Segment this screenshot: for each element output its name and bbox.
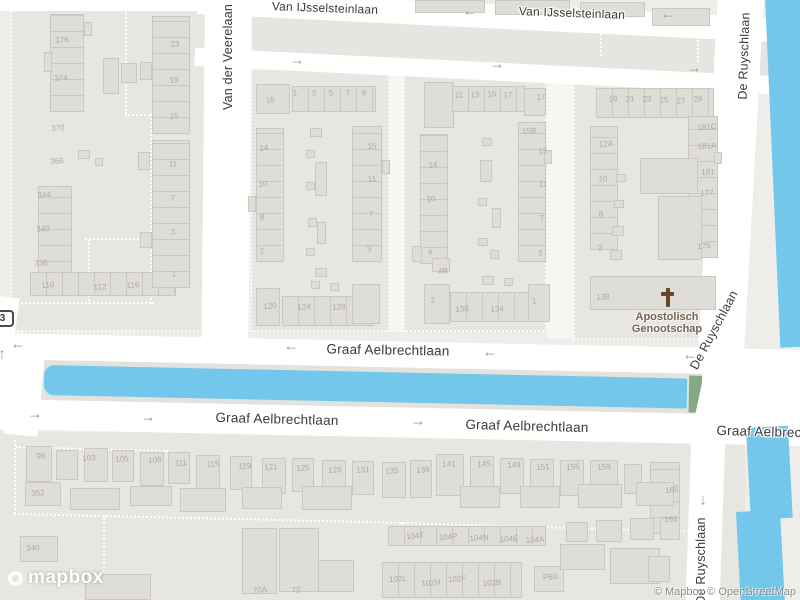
house-number: 102F <box>448 574 467 584</box>
building <box>612 226 624 236</box>
building <box>279 528 319 592</box>
house-number: 141 <box>442 459 456 469</box>
parcel-boundary <box>125 10 127 114</box>
building <box>614 200 624 208</box>
building <box>330 283 339 291</box>
house-number: 10 <box>426 194 436 204</box>
house-number: 138 <box>596 292 610 302</box>
house-number: 112 <box>93 282 106 292</box>
house-number: 8 <box>259 212 264 221</box>
building <box>504 278 513 286</box>
building <box>478 198 487 206</box>
house-number: 3 <box>311 88 316 97</box>
house-number: 102B <box>482 578 501 588</box>
house-number: 177 <box>700 188 714 198</box>
oneway-arrow-left-icon: ← <box>11 337 26 352</box>
house-number: 130 <box>455 304 469 314</box>
house-number: 14 <box>428 160 438 170</box>
christian-cross-icon <box>661 292 674 296</box>
road-top-left <box>0 0 215 11</box>
building <box>308 218 317 227</box>
house-number: 135 <box>385 466 399 476</box>
building <box>140 232 152 248</box>
building <box>311 281 320 289</box>
house-number: 1 <box>292 88 297 97</box>
building <box>478 238 488 246</box>
house-number: 104E <box>499 534 518 544</box>
building <box>70 488 120 510</box>
oneway-arrow-up-icon: ↑ <box>0 347 6 362</box>
house-number: 121 <box>264 462 278 472</box>
parcel-boundary <box>600 22 602 56</box>
house-number: 10 <box>258 179 268 189</box>
house-number: 159 <box>597 462 611 472</box>
building <box>482 138 492 146</box>
house-number: 11 <box>539 179 548 189</box>
building <box>56 450 78 480</box>
building <box>248 196 256 212</box>
house-number: 131 <box>356 465 370 475</box>
house-number: 145 <box>477 459 491 469</box>
house-number: 3 <box>366 244 371 253</box>
building <box>315 162 327 196</box>
parcel-boundary <box>14 440 16 514</box>
house-number: 181C <box>697 122 717 132</box>
house-number: 19 <box>169 75 179 85</box>
house-number: 23 <box>170 39 180 49</box>
house-number: 139 <box>416 465 430 475</box>
parcel-boundary <box>125 114 153 116</box>
house-number: 376 <box>55 35 69 45</box>
oneway-arrow-right-icon: → <box>687 61 702 76</box>
house-number: 366 <box>50 156 64 166</box>
oneway-arrow-down-icon: ↓ <box>699 493 707 508</box>
parcel-boundary <box>14 302 154 304</box>
house-number: 8 <box>598 209 603 218</box>
building <box>382 160 390 174</box>
oneway-arrow-right-icon: → <box>490 57 505 72</box>
route-shield: 3 <box>0 310 14 327</box>
building <box>610 250 622 260</box>
house-number: 104P <box>438 532 457 542</box>
building <box>460 486 500 508</box>
house-number: 7 <box>368 209 373 218</box>
house-number: 1 <box>531 296 536 305</box>
building <box>480 160 492 182</box>
building <box>648 556 670 582</box>
building <box>482 276 494 285</box>
building <box>566 522 588 542</box>
mapbox-logo[interactable]: mapbox <box>8 566 104 590</box>
house-number: 344 <box>37 190 51 200</box>
house-number: 5 <box>328 88 333 97</box>
house-number: 151 <box>536 462 550 472</box>
house-number: 352 <box>31 488 45 498</box>
building <box>95 158 103 166</box>
house-number: 15 <box>487 89 497 99</box>
house-number: 2 <box>430 295 435 304</box>
house-number: 12A <box>599 139 614 149</box>
canal-water-southeast <box>746 426 793 520</box>
building <box>180 488 226 512</box>
house-number: 149 <box>507 460 521 470</box>
house-number: 21 <box>625 94 635 104</box>
building <box>578 484 622 508</box>
house-number: 4B <box>438 266 448 276</box>
house-number: 161 <box>664 514 678 524</box>
house-number: 70A <box>253 585 268 595</box>
house-number: 11 <box>169 159 178 169</box>
building <box>317 222 326 244</box>
house-number: 15B <box>522 126 537 136</box>
side-alley <box>390 68 404 332</box>
building <box>518 122 546 262</box>
house-number: 10 <box>598 174 608 184</box>
house-number: 16 <box>265 95 275 105</box>
building <box>412 246 422 262</box>
building <box>138 152 150 170</box>
building <box>140 62 152 80</box>
building <box>168 452 190 484</box>
house-number: 25 <box>659 95 669 105</box>
building <box>424 284 450 324</box>
house-number: 105 <box>115 454 129 464</box>
house-number: 102L <box>389 574 407 584</box>
oneway-arrow-left-icon: ← <box>463 4 478 19</box>
building <box>242 528 277 594</box>
house-number: 125 <box>296 463 310 473</box>
oneway-arrow-right-icon: → <box>290 53 305 68</box>
building <box>492 208 501 228</box>
side-alley <box>547 70 573 338</box>
building <box>490 250 499 259</box>
house-number: 13 <box>470 90 480 100</box>
building <box>302 486 352 510</box>
building <box>424 82 454 128</box>
house-number: 7 <box>539 213 544 222</box>
house-number: P60 <box>543 572 558 582</box>
house-number: 175 <box>697 241 711 251</box>
christian-cross-icon <box>666 288 670 307</box>
house-number: 99 <box>36 451 46 461</box>
house-number: 15 <box>367 141 377 151</box>
building <box>318 560 354 592</box>
oneway-arrow-right-icon: → <box>141 410 156 425</box>
building <box>616 174 626 182</box>
oneway-arrow-left-icon: ← <box>284 339 299 354</box>
street-label: Graaf Aelbrechtlaan <box>326 341 449 358</box>
house-number: 104A <box>525 535 544 545</box>
building <box>242 487 282 509</box>
building <box>44 52 52 72</box>
house-number: 7 <box>170 193 175 202</box>
house-number: 129 <box>328 465 342 475</box>
parcel-boundary <box>697 28 699 62</box>
house-number: 370 <box>51 123 65 133</box>
house-number: 4 <box>427 247 432 256</box>
house-number: 72 <box>291 585 301 595</box>
building <box>560 544 605 570</box>
oneway-arrow-right-icon: → <box>28 407 43 422</box>
house-number: 109 <box>148 455 162 465</box>
map-canvas[interactable]: 3763743703663443403361101121162319151173… <box>0 0 800 600</box>
house-number: 17 <box>536 92 546 102</box>
house-number: 374 <box>54 73 68 83</box>
house-number: 128 <box>332 302 346 312</box>
house-number: 120 <box>263 301 277 311</box>
map-attribution[interactable]: © Mapbox © OpenStreetMap <box>654 586 796 598</box>
building <box>50 14 84 112</box>
house-number: 19 <box>608 94 618 104</box>
building <box>658 196 702 260</box>
house-number: 15 <box>538 146 548 156</box>
building <box>84 22 92 36</box>
house-number: 11 <box>455 90 464 100</box>
house-number: 1 <box>171 269 176 278</box>
house-number: 2 <box>259 246 264 255</box>
house-number: 14 <box>259 143 269 153</box>
house-number: 104T <box>406 531 425 541</box>
building <box>130 486 172 506</box>
building <box>78 150 90 159</box>
canal-water-east <box>765 0 800 348</box>
street-label: Graaf Aelbrechtlaan <box>465 417 588 435</box>
house-number: 23 <box>642 94 652 104</box>
house-number: 2 <box>597 243 602 252</box>
house-number: 115 <box>206 459 219 469</box>
house-number: 155 <box>566 462 580 472</box>
mapbox-logo-text: mapbox <box>28 567 104 589</box>
building <box>121 63 137 83</box>
house-number: 103 <box>82 453 96 463</box>
house-number: 165 <box>665 485 679 495</box>
building <box>315 268 327 277</box>
house-number: 9 <box>361 88 366 97</box>
house-number: 119 <box>238 461 251 471</box>
mapbox-logo-icon <box>8 571 23 586</box>
house-number: 3 <box>170 227 175 236</box>
house-number: 336 <box>34 258 48 268</box>
house-number: 3 <box>537 248 542 257</box>
building <box>306 150 315 158</box>
building <box>352 284 380 324</box>
building <box>306 248 315 256</box>
house-number: 340 <box>36 224 50 234</box>
house-number: 116 <box>126 280 139 290</box>
building <box>640 158 698 194</box>
house-number: 110 <box>41 280 54 290</box>
street-label: Van der Veerelaan <box>221 4 235 110</box>
street-label: Graaf Aelbrechtlaan <box>215 410 338 428</box>
house-number: 181A <box>697 141 716 151</box>
oneway-arrow-left-icon: ← <box>483 345 498 360</box>
house-number: 27 <box>676 96 686 106</box>
house-number: 7 <box>345 88 350 97</box>
poi-apostolisch-genootschap <box>660 288 676 312</box>
building <box>630 518 654 540</box>
house-number: 111 <box>175 458 188 468</box>
house-number: 104N <box>469 533 489 543</box>
building <box>520 486 560 508</box>
house-number: 102H <box>421 578 441 588</box>
building <box>306 182 315 190</box>
building <box>596 520 622 542</box>
house-number: 181 <box>701 167 715 177</box>
house-number: 15 <box>169 111 179 121</box>
house-number: 11 <box>368 174 377 184</box>
house-number: 124 <box>297 302 311 312</box>
building <box>103 58 119 94</box>
house-number: 340 <box>26 543 40 553</box>
building <box>714 152 722 164</box>
house-number: 134 <box>490 304 504 314</box>
oneway-arrow-right-icon: → <box>411 414 426 429</box>
oneway-arrow-left-icon: ← <box>661 7 676 22</box>
poi-label: Apostolisch Genootschap <box>632 311 702 335</box>
building <box>310 128 322 137</box>
house-number: 29 <box>693 94 703 104</box>
house-number: 17 <box>503 90 513 100</box>
